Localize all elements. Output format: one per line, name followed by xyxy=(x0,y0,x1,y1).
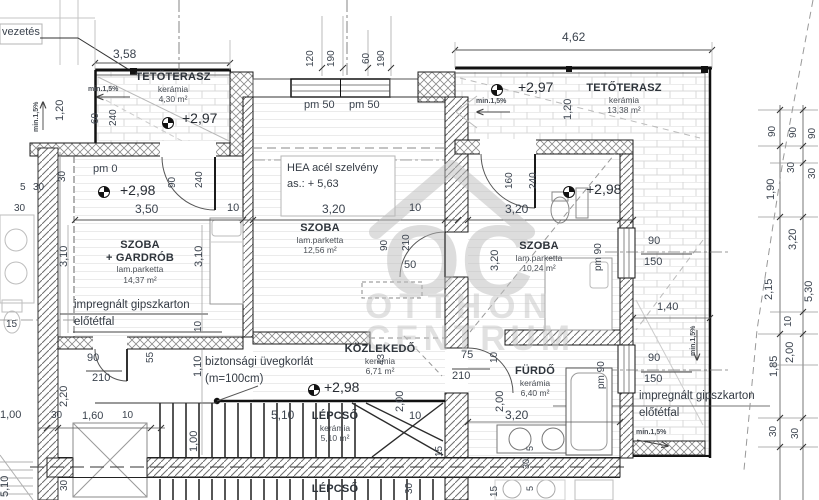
dim-label: 55 xyxy=(146,352,156,363)
level-marker xyxy=(492,85,503,96)
dim-label: 1,00 xyxy=(189,431,200,452)
dim-label: 210 xyxy=(402,234,412,251)
dim-label: 1,90 xyxy=(766,179,777,200)
room-finish: lam.parketta xyxy=(272,235,368,246)
room-area: 6,71 m² xyxy=(334,366,426,377)
dim-label: 3,58 xyxy=(113,48,136,60)
dim-label: 43 xyxy=(377,354,387,365)
dim-label: 210 xyxy=(452,371,470,382)
window-parapet-label: pm 50 xyxy=(304,100,335,111)
dim-label: 30 xyxy=(791,428,801,439)
dim-label: 3,20 xyxy=(505,409,528,421)
dim-label: 90 xyxy=(380,240,390,251)
dim-label: 30 xyxy=(33,183,44,193)
dim-label: 30 xyxy=(51,411,62,421)
dim-label: 1,20 xyxy=(563,99,574,120)
level-marker xyxy=(564,187,575,198)
room-area: 4,30 m² xyxy=(125,94,221,105)
railing-note: biztonsági üvegkorlát (m=100cm) xyxy=(205,354,313,387)
room-name: SZOBA xyxy=(272,222,368,235)
dim-label: 1,10 xyxy=(193,356,204,377)
dim-label: 30 xyxy=(808,168,818,179)
room-name: LÉPCSŐ xyxy=(297,410,373,423)
dim-label: 50 xyxy=(404,260,416,271)
level-label: pm 0 xyxy=(93,164,117,175)
dim-label: 240 xyxy=(109,109,119,126)
room-area: 5,10 m² xyxy=(297,433,373,444)
slope-label: min.1,5% xyxy=(690,326,697,356)
floor-plan: OC OTTHON CENTRUM TETŐTERASZ kerámia 4,3… xyxy=(0,0,819,500)
railing-note-line1: biztonsági üvegkorlát xyxy=(205,354,313,371)
room-area: 13,38 m² xyxy=(576,105,672,116)
dim-label: 160 xyxy=(505,172,515,189)
dim-label: 190 xyxy=(327,50,337,67)
dim-label: 75 xyxy=(461,350,473,361)
room-terrace-right: TETŐTERASZ kerámia 13,38 m² xyxy=(576,82,672,116)
dim-label: 10 xyxy=(409,411,421,422)
dim-label: 1,85 xyxy=(769,356,780,377)
room-name2: + GARDRÓB xyxy=(92,252,188,265)
room-area: 10,24 m² xyxy=(491,263,587,274)
room-finish: kerámia xyxy=(576,95,672,106)
level-label: +2,98 xyxy=(120,183,155,197)
room-name: LÉPCSŐ xyxy=(297,483,373,496)
beam-note: HEA acél szelvény as.: + 5,63 xyxy=(287,161,378,193)
dim-label: 3,10 xyxy=(59,246,70,267)
dim-label: 30 xyxy=(405,483,415,494)
room-stairs: LÉPCSŐ kerámia 5,10 m² xyxy=(297,410,373,444)
dim-label: 240 xyxy=(529,172,539,189)
slope-label: min.1,5% xyxy=(476,98,506,105)
dim-label: 2,20 xyxy=(59,386,70,407)
dim-label: 15 xyxy=(490,486,500,497)
dim-label: 10 xyxy=(122,411,133,421)
room-name: SZOBA xyxy=(92,239,188,252)
dim-label: 1,00 xyxy=(0,410,21,421)
dim-label: 2,15 xyxy=(764,279,775,300)
room-stairs-lower: LÉPCSŐ xyxy=(297,483,373,496)
lining-left-line1: impregnált gipszkarton xyxy=(74,297,190,314)
dim-label: 30 xyxy=(14,204,25,214)
slope-label: min.1,5% xyxy=(33,102,40,132)
room-finish: lam.parketta xyxy=(92,264,188,275)
level-marker xyxy=(99,187,110,198)
level-label: +2,98 xyxy=(586,182,621,196)
lining-note-right: impregnált gipszkarton előtétfal xyxy=(639,388,755,421)
level-label: +2,98 xyxy=(324,380,359,394)
dim-label: 5,30 xyxy=(804,281,815,302)
dim-label: 90 xyxy=(808,128,818,139)
dim-label: 90 xyxy=(768,126,778,137)
slope-label: min.1,5% xyxy=(88,86,118,93)
dim-label: 190 xyxy=(377,50,387,67)
dim-label: 10 xyxy=(490,352,500,363)
dim-label: 3,20 xyxy=(505,203,528,215)
window-parapet-label: pm 90 xyxy=(594,243,604,271)
dim-label: 10 xyxy=(784,316,794,327)
dim-label: 5 xyxy=(526,446,535,451)
window-parapet-label: pm 50 xyxy=(349,100,380,111)
dim-label: 3,10 xyxy=(194,246,205,267)
dim-label: 2,00 xyxy=(785,342,796,363)
dim-label: 90 xyxy=(648,353,660,364)
room-area: 12,56 m² xyxy=(272,245,368,256)
window-parapet-label: pm 90 xyxy=(597,361,607,389)
dim-label: 5,10 xyxy=(271,409,294,421)
dim-label: 30 xyxy=(58,171,68,182)
room-name: SZOBA xyxy=(491,240,587,253)
dim-label: 60 xyxy=(362,53,372,64)
beam-note-line2: as.: + 5,63 xyxy=(287,177,378,193)
dim-label: 150 xyxy=(644,257,662,268)
dim-label: 3,20 xyxy=(490,250,501,271)
dim-label: 1,40 xyxy=(657,302,678,313)
dim-label: 15 xyxy=(435,446,445,457)
room-finish: kerámia xyxy=(489,378,581,389)
dim-label: 10 xyxy=(194,321,204,332)
dim-label: 3,50 xyxy=(135,203,158,215)
room-finish: kerámia xyxy=(297,423,373,434)
room-name: FÜRDŐ xyxy=(489,365,581,378)
level-marker xyxy=(163,118,174,129)
dim-label: 3,20 xyxy=(788,229,799,250)
dim-label: 60 xyxy=(91,113,101,124)
room-name: TETŐTERASZ xyxy=(125,71,221,84)
dim-label: 3,20 xyxy=(322,203,345,215)
room-name: TETŐTERASZ xyxy=(576,82,672,95)
dim-label: 90 xyxy=(87,353,99,364)
dim-label: 210 xyxy=(92,373,110,384)
room-terrace-left: TETŐTERASZ kerámia 4,30 m² xyxy=(125,71,221,105)
level-label: +2,97 xyxy=(182,111,217,125)
dim-label: 10 xyxy=(227,203,239,214)
dim-label: 90 xyxy=(789,127,799,138)
room-bedroom-mid: SZOBA lam.parketta 12,56 m² xyxy=(272,222,368,256)
railing-note-line2: (m=100cm) xyxy=(205,371,313,388)
dim-label: 90 xyxy=(168,177,178,188)
dim-label: 30 xyxy=(769,426,779,437)
dim-label: 2,00 xyxy=(395,391,406,412)
dim-label: 10 xyxy=(409,203,421,214)
beam-note-line1: HEA acél szelvény xyxy=(287,161,378,177)
room-finish: kerámia xyxy=(125,84,221,95)
lining-right-line2: előtétfal xyxy=(639,405,755,422)
room-bedroom-right: SZOBA lam.parketta 10,24 m² xyxy=(491,240,587,274)
lining-left-line2: előtétfal xyxy=(74,314,190,331)
dim-label: 90 xyxy=(648,236,660,247)
dim-label: 30 xyxy=(522,459,531,469)
dim-label: 1,20 xyxy=(55,100,66,121)
dim-label: 150 xyxy=(644,374,662,385)
dim-label: 30 xyxy=(60,480,70,491)
dim-label: 5 xyxy=(20,183,26,193)
dim-label: 120 xyxy=(306,50,316,67)
lining-note-left: impregnált gipszkarton előtétfal xyxy=(74,297,190,330)
duct-label: vezetés xyxy=(2,27,40,38)
dim-label: 240 xyxy=(195,171,205,188)
level-label: +2,97 xyxy=(518,80,553,94)
dim-label: 5,10 xyxy=(0,476,11,497)
dim-label: 4,62 xyxy=(562,31,585,43)
room-finish: lam.parketta xyxy=(491,253,587,264)
dim-label: 15 xyxy=(6,320,17,330)
room-area: 14,37 m² xyxy=(92,275,188,286)
dim-label: 30 xyxy=(787,162,797,173)
dim-label: 5 xyxy=(526,486,535,491)
dim-label: 1,60 xyxy=(82,411,103,422)
slope-label: min.1,5% xyxy=(636,429,666,436)
lining-right-line1: impregnált gipszkarton xyxy=(639,388,755,405)
room-bedroom-left: SZOBA + GARDRÓB lam.parketta 14,37 m² xyxy=(92,239,188,286)
